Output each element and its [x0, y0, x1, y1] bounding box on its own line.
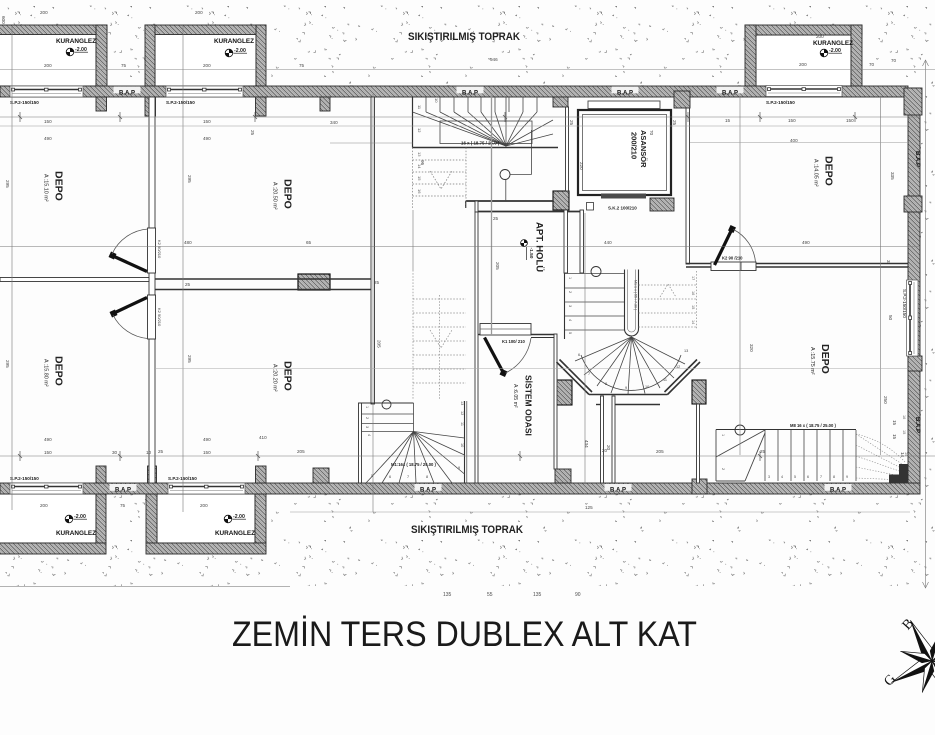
svg-text:205: 205	[297, 449, 305, 454]
svg-text:B.A.P: B.A.P	[420, 488, 436, 494]
svg-text:4: 4	[568, 319, 572, 321]
svg-text:S.P.2-150/150: S.P.2-150/150	[766, 100, 795, 105]
svg-text:4: 4	[781, 475, 783, 479]
svg-text:DEPO: DEPO	[823, 156, 835, 186]
svg-text:1: 1	[568, 277, 572, 279]
svg-text:8: 8	[426, 475, 428, 479]
svg-text:SIKIŞTIRILMIŞ TOPRAK: SIKIŞTIRILMIŞ TOPRAK	[408, 31, 520, 43]
svg-text:B.A.P: B.A.P	[610, 488, 626, 494]
svg-text:B.A.P: B.A.P	[617, 91, 633, 97]
svg-text:9: 9	[625, 386, 627, 390]
svg-text:S.P.2-150/150: S.P.2-150/150	[10, 476, 39, 481]
svg-text:600: 600	[1, 16, 6, 24]
svg-text:15: 15	[892, 420, 897, 426]
svg-text:946: 946	[490, 57, 498, 62]
svg-text:6: 6	[807, 475, 809, 479]
svg-text:335: 335	[890, 172, 895, 180]
svg-text:13: 13	[417, 152, 422, 157]
svg-text:S.P.2-150/150: S.P.2-150/150	[168, 476, 197, 481]
svg-text:25: 25	[672, 120, 677, 126]
svg-text:B.A.P: B.A.P	[830, 488, 846, 494]
svg-text:APT. HOLÜ: APT. HOLÜ	[534, 222, 545, 272]
svg-text:11: 11	[663, 378, 667, 382]
svg-text:B.A.P: B.A.P	[462, 91, 478, 97]
svg-text:2: 2	[568, 291, 572, 293]
svg-text:16: 16	[417, 189, 422, 194]
svg-text:8: 8	[605, 382, 607, 386]
svg-text:S.P.2-150/150: S.P.2-150/150	[902, 289, 907, 318]
svg-text:490: 490	[44, 136, 52, 141]
svg-text:SIKIŞTIRILMIŞ TOPRAK: SIKIŞTIRILMIŞ TOPRAK	[411, 524, 523, 536]
svg-text:DEPO: DEPO	[53, 356, 65, 386]
svg-text:B.A.P: B.A.P	[119, 91, 135, 97]
svg-text:25: 25	[158, 449, 164, 454]
svg-text:410: 410	[259, 435, 267, 440]
svg-text:200: 200	[195, 10, 203, 15]
svg-text:480: 480	[184, 240, 192, 245]
svg-text:DEPO: DEPO	[53, 171, 65, 201]
svg-text:3: 3	[886, 260, 891, 263]
svg-text:70: 70	[891, 58, 897, 63]
svg-text:SİSTEM ODASI: SİSTEM ODASI	[524, 375, 534, 436]
svg-text:75: 75	[120, 503, 126, 508]
svg-text:200: 200	[816, 34, 824, 39]
svg-text:16: 16	[691, 291, 695, 295]
svg-text:9: 9	[846, 475, 848, 479]
svg-text:10: 10	[434, 98, 439, 103]
svg-text:135: 135	[533, 592, 542, 598]
svg-text:5: 5	[794, 475, 796, 479]
svg-text:8: 8	[833, 475, 835, 479]
svg-text:125: 125	[585, 505, 593, 510]
svg-text:65: 65	[306, 240, 312, 245]
svg-text:340: 340	[330, 120, 338, 125]
svg-text:25: 25	[185, 282, 191, 287]
svg-text:A :15.10 m²: A :15.10 m²	[43, 174, 49, 202]
svg-text:7: 7	[588, 372, 590, 376]
svg-text:KURANGLEZ: KURANGLEZ	[56, 530, 96, 537]
svg-text:16: 16	[902, 415, 906, 419]
svg-text:DEPO: DEPO	[282, 361, 294, 391]
svg-text:KURANGLEZ: KURANGLEZ	[813, 40, 853, 47]
svg-text:B.A.P: B.A.P	[722, 91, 738, 97]
svg-text:20: 20	[606, 445, 611, 451]
svg-text:K1 100/ 210: K1 100/ 210	[502, 339, 525, 344]
svg-text:150: 150	[44, 450, 52, 455]
svg-text:15: 15	[725, 118, 731, 123]
svg-text:DEPO: DEPO	[282, 179, 294, 209]
svg-text:150: 150	[846, 118, 854, 123]
svg-text:KURANGLEZ: KURANGLEZ	[215, 530, 255, 537]
svg-text:M1:1 x ( 55 / 7.30 ): M1:1 x ( 55 / 7.30 )	[634, 280, 638, 310]
svg-text:A :20.50 m²: A :20.50 m²	[272, 182, 278, 210]
svg-text:220: 220	[579, 162, 584, 170]
svg-text:205: 205	[495, 262, 500, 270]
svg-text:150: 150	[203, 450, 211, 455]
svg-text:96: 96	[420, 160, 425, 166]
svg-text:9: 9	[458, 466, 460, 470]
svg-text:10: 10	[146, 450, 152, 455]
svg-text:2: 2	[365, 417, 369, 419]
svg-text:90: 90	[575, 592, 581, 598]
svg-text:3: 3	[568, 305, 572, 307]
svg-text:15: 15	[417, 176, 422, 181]
svg-text:295: 295	[5, 360, 10, 368]
svg-text:200: 200	[40, 503, 48, 508]
svg-text:1: 1	[721, 434, 725, 436]
svg-text:15: 15	[902, 430, 906, 434]
svg-text:3: 3	[365, 426, 369, 428]
svg-text:200/210: 200/210	[630, 132, 639, 159]
svg-text:25: 25	[569, 120, 574, 126]
svg-text:6: 6	[389, 475, 391, 479]
svg-text:75: 75	[121, 63, 127, 68]
svg-text:KURANGLEZ: KURANGLEZ	[56, 38, 96, 45]
svg-text:M8 16 x ( 18.75 / 25.00 ): M8 16 x ( 18.75 / 25.00 )	[790, 423, 836, 428]
svg-text:490: 490	[802, 240, 810, 245]
svg-text:10: 10	[645, 385, 649, 389]
svg-text:14: 14	[691, 320, 695, 324]
svg-text:S.P.2-150/150: S.P.2-150/150	[166, 100, 195, 105]
svg-text:K2 90/210: K2 90/210	[157, 308, 162, 327]
svg-text:205: 205	[656, 449, 664, 454]
svg-text:11: 11	[460, 422, 464, 426]
svg-text:295: 295	[187, 175, 192, 183]
svg-text:KURANGLEZ: KURANGLEZ	[214, 38, 254, 45]
svg-text:12: 12	[460, 411, 464, 415]
svg-text:434: 434	[584, 440, 589, 448]
svg-text:3: 3	[768, 475, 770, 479]
svg-text:K2 90/210: K2 90/210	[157, 240, 162, 259]
svg-text:B.A.P: B.A.P	[914, 417, 920, 433]
svg-text:490: 490	[203, 437, 211, 442]
svg-text:135: 135	[443, 592, 452, 598]
svg-text:M1:16x ( 18.75 / 25.00 ): M1:16x ( 18.75 / 25.00 )	[391, 462, 437, 467]
svg-text:A :6.05 m²: A :6.05 m²	[512, 384, 518, 408]
svg-text:15: 15	[892, 434, 897, 440]
svg-text:295: 295	[5, 180, 10, 188]
svg-text:200: 200	[40, 10, 48, 15]
svg-text:5: 5	[568, 332, 572, 334]
svg-text:13: 13	[684, 349, 688, 353]
svg-text:13: 13	[460, 401, 464, 405]
svg-text:70: 70	[649, 130, 654, 136]
svg-text:4: 4	[367, 434, 371, 436]
svg-text:A :14.05 m²: A :14.05 m²	[813, 159, 819, 187]
svg-text:25: 25	[250, 130, 255, 136]
svg-text:15: 15	[691, 305, 695, 309]
svg-text:150: 150	[44, 119, 52, 124]
svg-text:490: 490	[203, 136, 211, 141]
svg-text:DEPO: DEPO	[819, 344, 831, 374]
svg-text:16 x ( 18.75 / 25.0 ): 16 x ( 18.75 / 25.0 )	[461, 141, 500, 146]
svg-text:S.K.2 100/210: S.K.2 100/210	[608, 206, 637, 211]
svg-text:B.A.P: B.A.P	[115, 488, 131, 494]
svg-text:250: 250	[883, 396, 888, 404]
svg-text:200: 200	[200, 503, 208, 508]
svg-text:200: 200	[203, 63, 211, 68]
svg-text:A :15.80 m²: A :15.80 m²	[43, 359, 49, 387]
svg-text:295: 295	[187, 355, 192, 363]
svg-text:25: 25	[493, 216, 499, 221]
svg-text:205: 205	[377, 340, 382, 348]
svg-text:14: 14	[900, 452, 905, 458]
svg-text:10: 10	[460, 443, 464, 447]
svg-text:200: 200	[799, 62, 807, 67]
svg-text:-1.50: -1.50	[528, 248, 534, 259]
svg-text:440: 440	[604, 240, 612, 245]
svg-text:25: 25	[374, 280, 380, 285]
svg-text:490: 490	[44, 437, 52, 442]
svg-text:7: 7	[820, 475, 822, 479]
svg-text:ASANSÖR: ASANSÖR	[639, 130, 648, 168]
svg-text:400: 400	[790, 138, 798, 143]
svg-text:6: 6	[578, 353, 580, 357]
svg-text:50: 50	[888, 315, 893, 321]
svg-text:7: 7	[407, 475, 409, 479]
svg-text:ZEMİN TERS DUBLEX ALT KAT: ZEMİN TERS DUBLEX ALT KAT	[232, 614, 697, 654]
svg-text:150: 150	[203, 119, 211, 124]
svg-text:200: 200	[44, 63, 52, 68]
svg-text:12: 12	[417, 128, 422, 133]
svg-text:150: 150	[788, 118, 796, 123]
svg-text:70: 70	[869, 62, 875, 67]
svg-text:B.A.P: B.A.P	[914, 151, 920, 167]
svg-text:2: 2	[721, 468, 725, 470]
svg-text:320: 320	[749, 344, 754, 352]
svg-text:25: 25	[760, 449, 766, 454]
svg-text:S.P.2-150/150: S.P.2-150/150	[10, 100, 39, 105]
svg-text:75: 75	[299, 63, 305, 68]
svg-text:1: 1	[365, 406, 369, 408]
svg-text:A :15.75 m²: A :15.75 m²	[809, 347, 815, 375]
svg-text:55: 55	[487, 592, 493, 598]
svg-text:A :20.20 m²: A :20.20 m²	[272, 364, 278, 392]
svg-text:30: 30	[112, 450, 118, 455]
svg-text:17: 17	[691, 276, 695, 280]
